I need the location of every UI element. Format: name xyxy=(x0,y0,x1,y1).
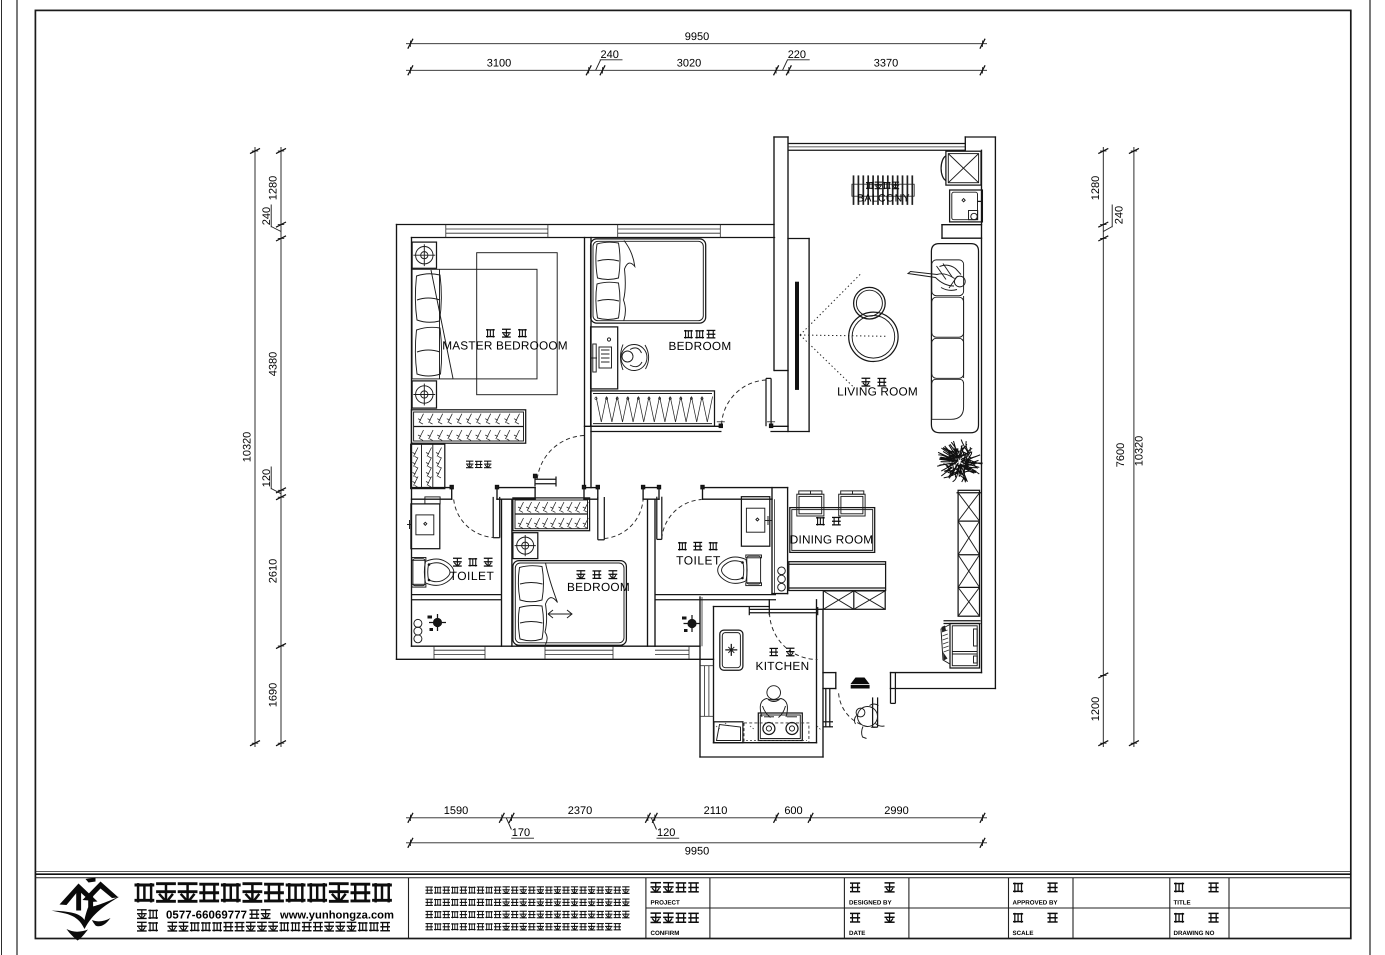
svg-text:170: 170 xyxy=(512,827,530,839)
svg-text:DRAWING NO: DRAWING NO xyxy=(1174,930,1215,937)
svg-text:240: 240 xyxy=(1114,206,1126,224)
svg-text:LIVING ROOM: LIVING ROOM xyxy=(837,385,918,399)
svg-text:3100: 3100 xyxy=(487,58,511,70)
svg-text:2990: 2990 xyxy=(884,805,908,817)
svg-text:TITLE: TITLE xyxy=(1174,900,1191,907)
svg-text:3020: 3020 xyxy=(677,58,701,70)
svg-text:10320: 10320 xyxy=(1134,436,1146,467)
svg-text:MASTER BEDROOOM: MASTER BEDROOOM xyxy=(442,339,568,353)
svg-text:1280: 1280 xyxy=(268,176,280,200)
svg-text:1690: 1690 xyxy=(268,683,280,707)
svg-text:TOILET: TOILET xyxy=(450,569,495,583)
svg-text:PROJECT: PROJECT xyxy=(651,900,680,907)
svg-text:4380: 4380 xyxy=(268,352,280,376)
svg-text:DATE: DATE xyxy=(849,930,865,937)
svg-text:TOILET: TOILET xyxy=(676,554,721,568)
svg-text:9950: 9950 xyxy=(685,846,709,858)
svg-text:1200: 1200 xyxy=(1090,697,1102,721)
svg-text:APPROVED BY: APPROVED BY xyxy=(1013,900,1059,907)
svg-text:DINING ROOM: DINING ROOM xyxy=(790,533,873,547)
svg-text:www.yunhongza.com: www.yunhongza.com xyxy=(279,910,394,922)
svg-text:1280: 1280 xyxy=(1090,176,1102,200)
svg-text:7600: 7600 xyxy=(1115,443,1127,467)
svg-text:CONFIRM: CONFIRM xyxy=(651,930,680,937)
svg-text:DESIGNED BY: DESIGNED BY xyxy=(849,900,893,907)
svg-text:2370: 2370 xyxy=(568,805,592,817)
svg-text:2110: 2110 xyxy=(704,805,728,817)
svg-text:SCALE: SCALE xyxy=(1013,930,1034,937)
svg-text:KITCHEN: KITCHEN xyxy=(756,659,810,673)
svg-text:1590: 1590 xyxy=(444,805,468,817)
svg-text:BALCONY: BALCONY xyxy=(857,193,910,205)
svg-text:3370: 3370 xyxy=(874,58,898,70)
svg-text:BEDROOM: BEDROOM xyxy=(567,580,630,594)
svg-text:BEDROOM: BEDROOM xyxy=(668,339,731,353)
svg-text:120: 120 xyxy=(657,827,675,839)
svg-text:9950: 9950 xyxy=(685,31,709,43)
svg-text:0577-66069777: 0577-66069777 xyxy=(166,910,247,922)
svg-text:600: 600 xyxy=(784,805,802,817)
svg-text:10320: 10320 xyxy=(242,432,254,463)
svg-text:2610: 2610 xyxy=(268,559,280,583)
